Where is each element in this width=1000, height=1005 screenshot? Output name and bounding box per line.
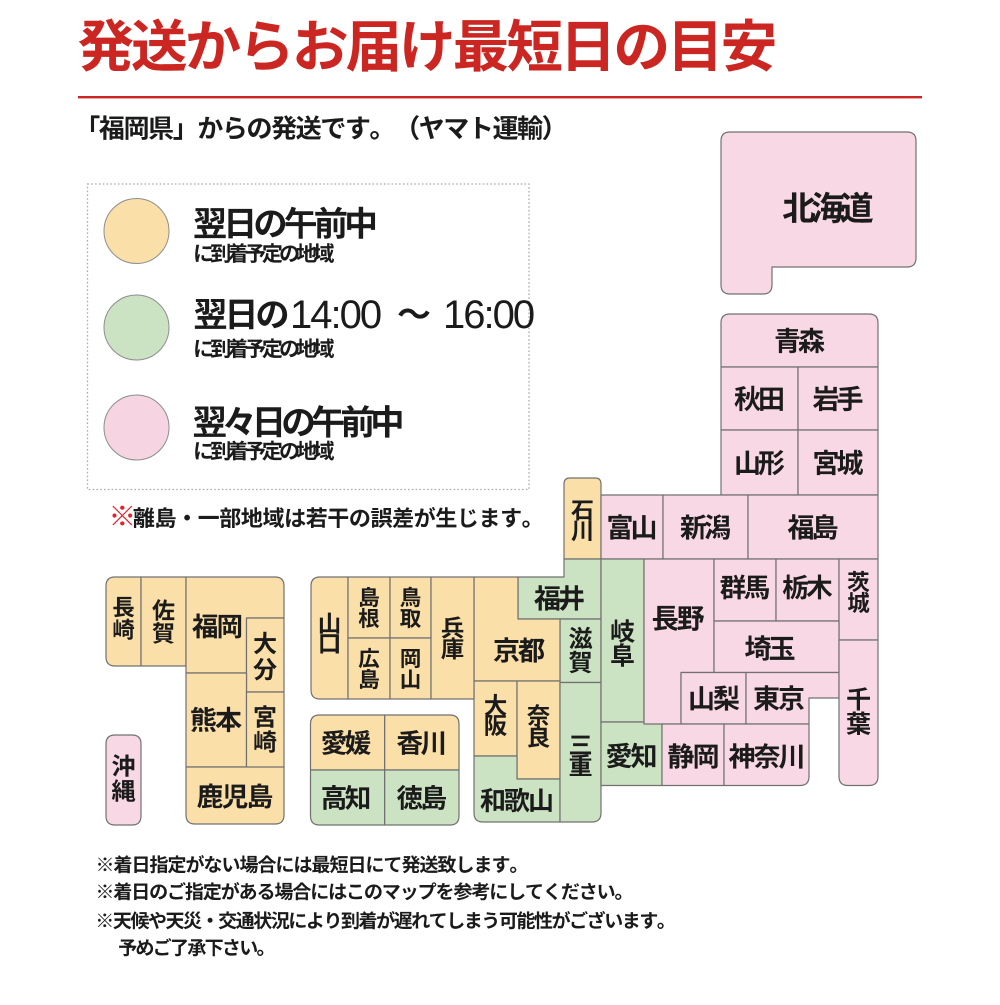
svg-text:14:00: 14:00 [290, 293, 381, 337]
svg-text:16:00: 16:00 [443, 293, 534, 337]
